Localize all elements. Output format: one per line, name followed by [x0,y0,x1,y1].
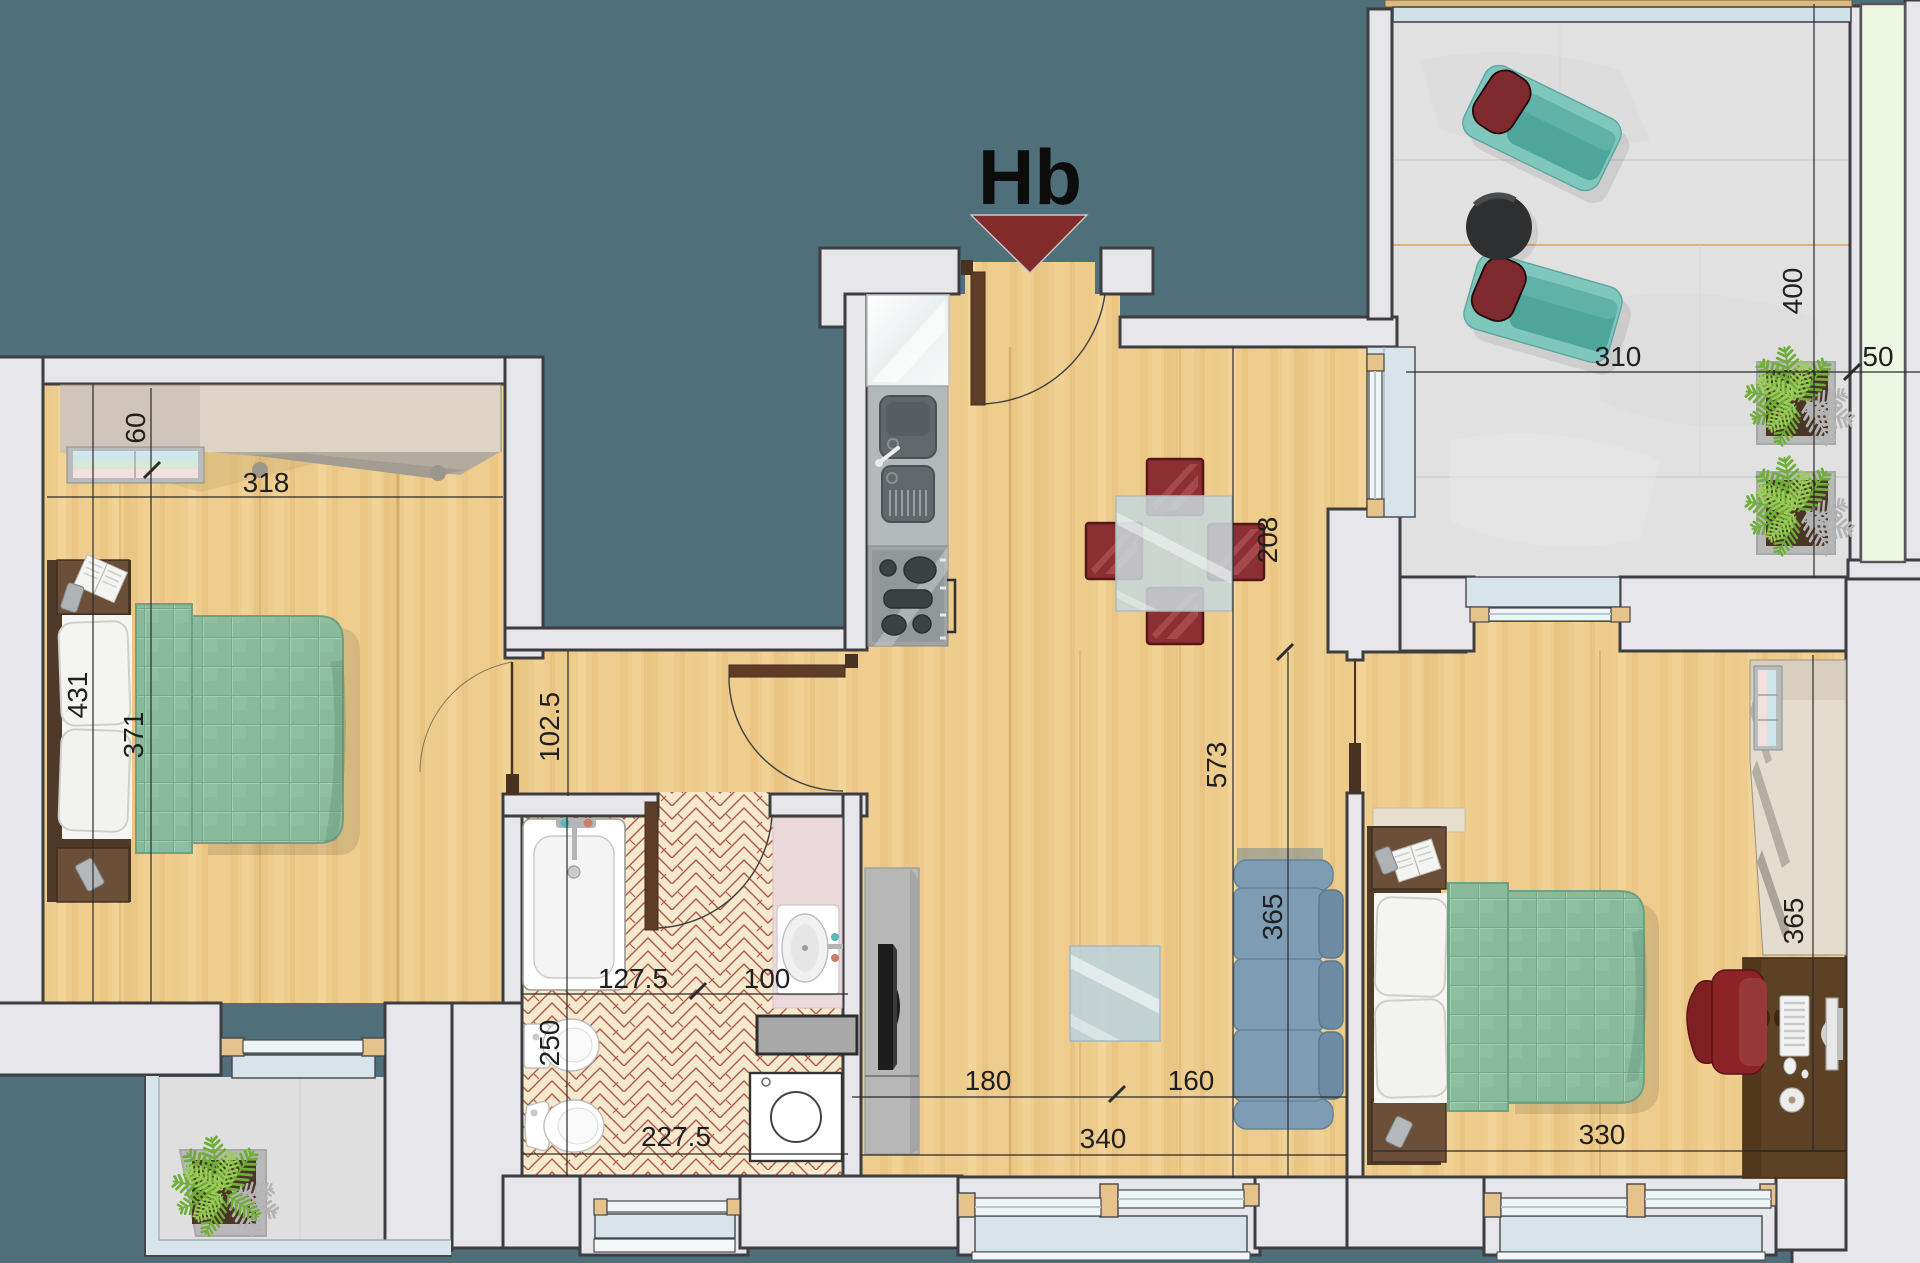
svg-text:310: 310 [1595,341,1642,372]
svg-text:318: 318 [243,467,290,498]
svg-text:102.5: 102.5 [534,692,565,762]
svg-text:Hb: Hb [978,133,1082,221]
svg-text:573: 573 [1201,742,1232,789]
svg-text:431: 431 [62,672,93,719]
svg-text:371: 371 [118,712,149,759]
svg-text:180: 180 [965,1065,1012,1096]
svg-text:365: 365 [1778,898,1809,945]
svg-text:127.5: 127.5 [598,963,668,994]
svg-text:50: 50 [1862,341,1893,372]
svg-text:160: 160 [1168,1065,1215,1096]
svg-text:100: 100 [744,963,791,994]
svg-text:227.5: 227.5 [641,1121,711,1152]
svg-text:208: 208 [1252,517,1283,564]
svg-text:400: 400 [1777,268,1808,315]
svg-text:365: 365 [1257,894,1288,941]
svg-text:340: 340 [1080,1123,1127,1154]
svg-text:60: 60 [120,412,151,443]
svg-text:250: 250 [534,1020,565,1067]
svg-text:330: 330 [1579,1119,1626,1150]
